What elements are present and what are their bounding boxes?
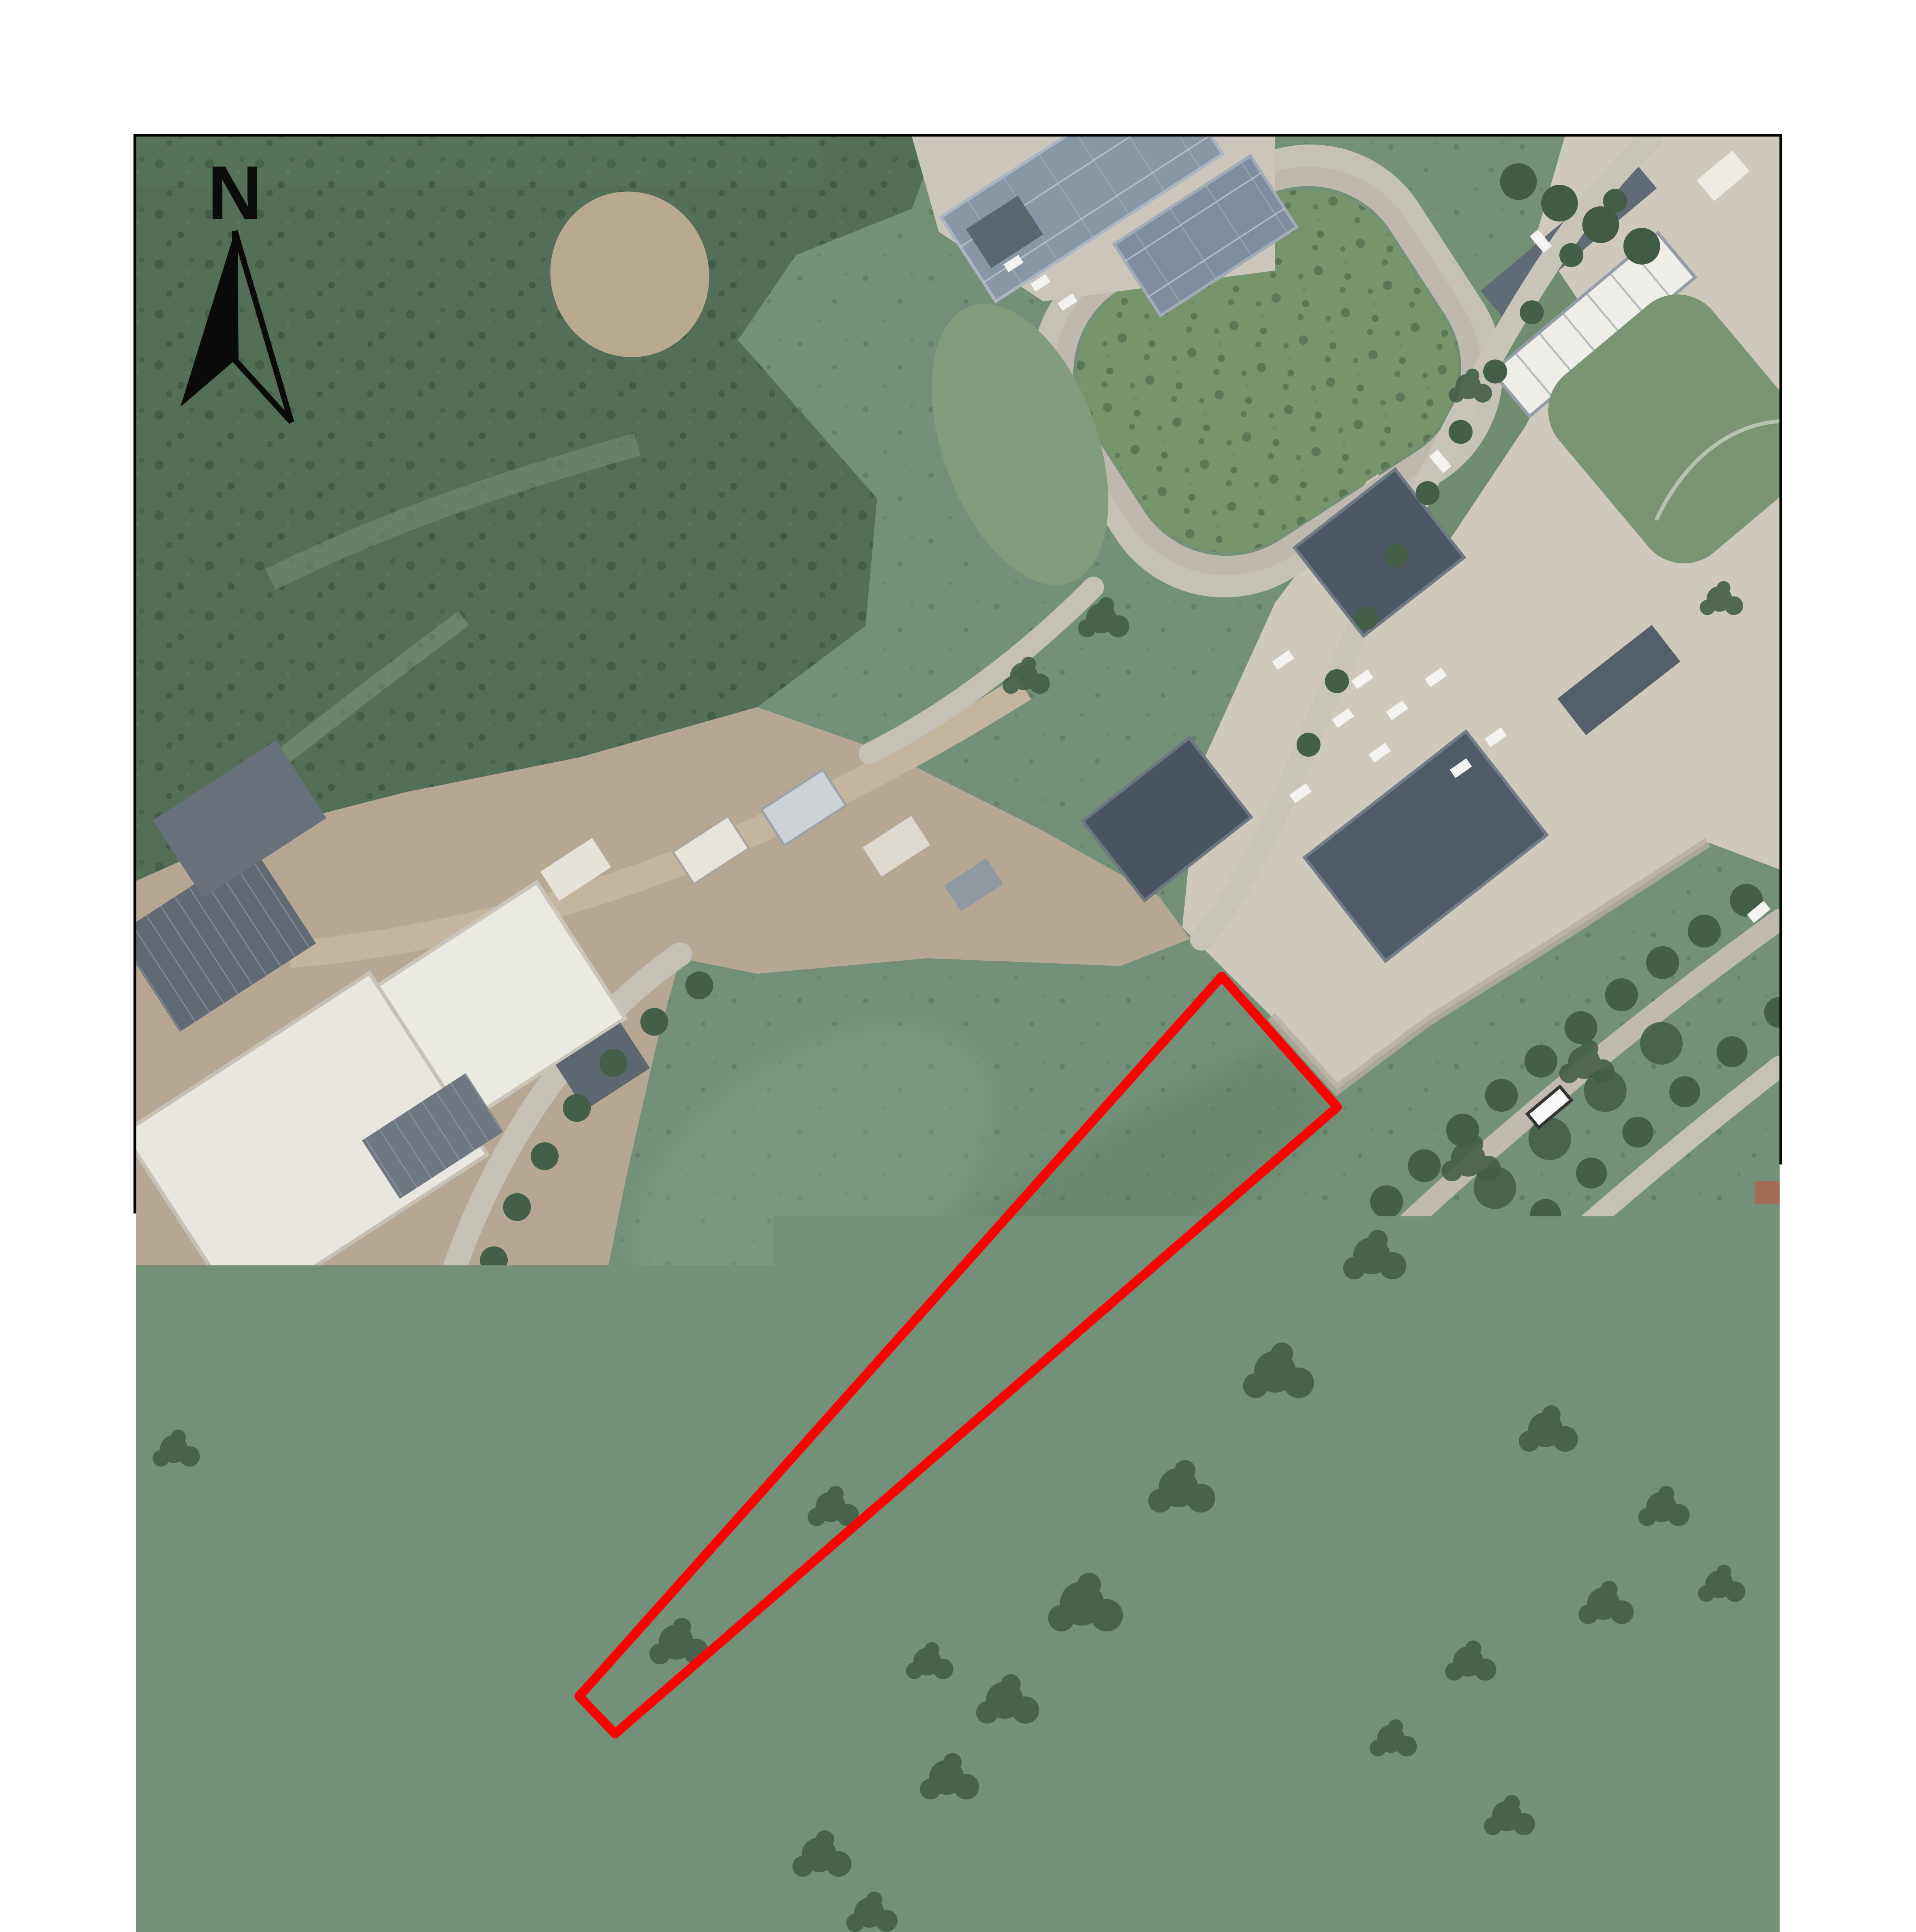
north-label: N xyxy=(207,150,262,235)
satellite-imagery: N xyxy=(117,70,1832,1932)
satellite-map: N xyxy=(0,0,1916,1932)
map-figure-page: N xyxy=(0,0,1916,1932)
image-grain xyxy=(136,136,1780,1932)
